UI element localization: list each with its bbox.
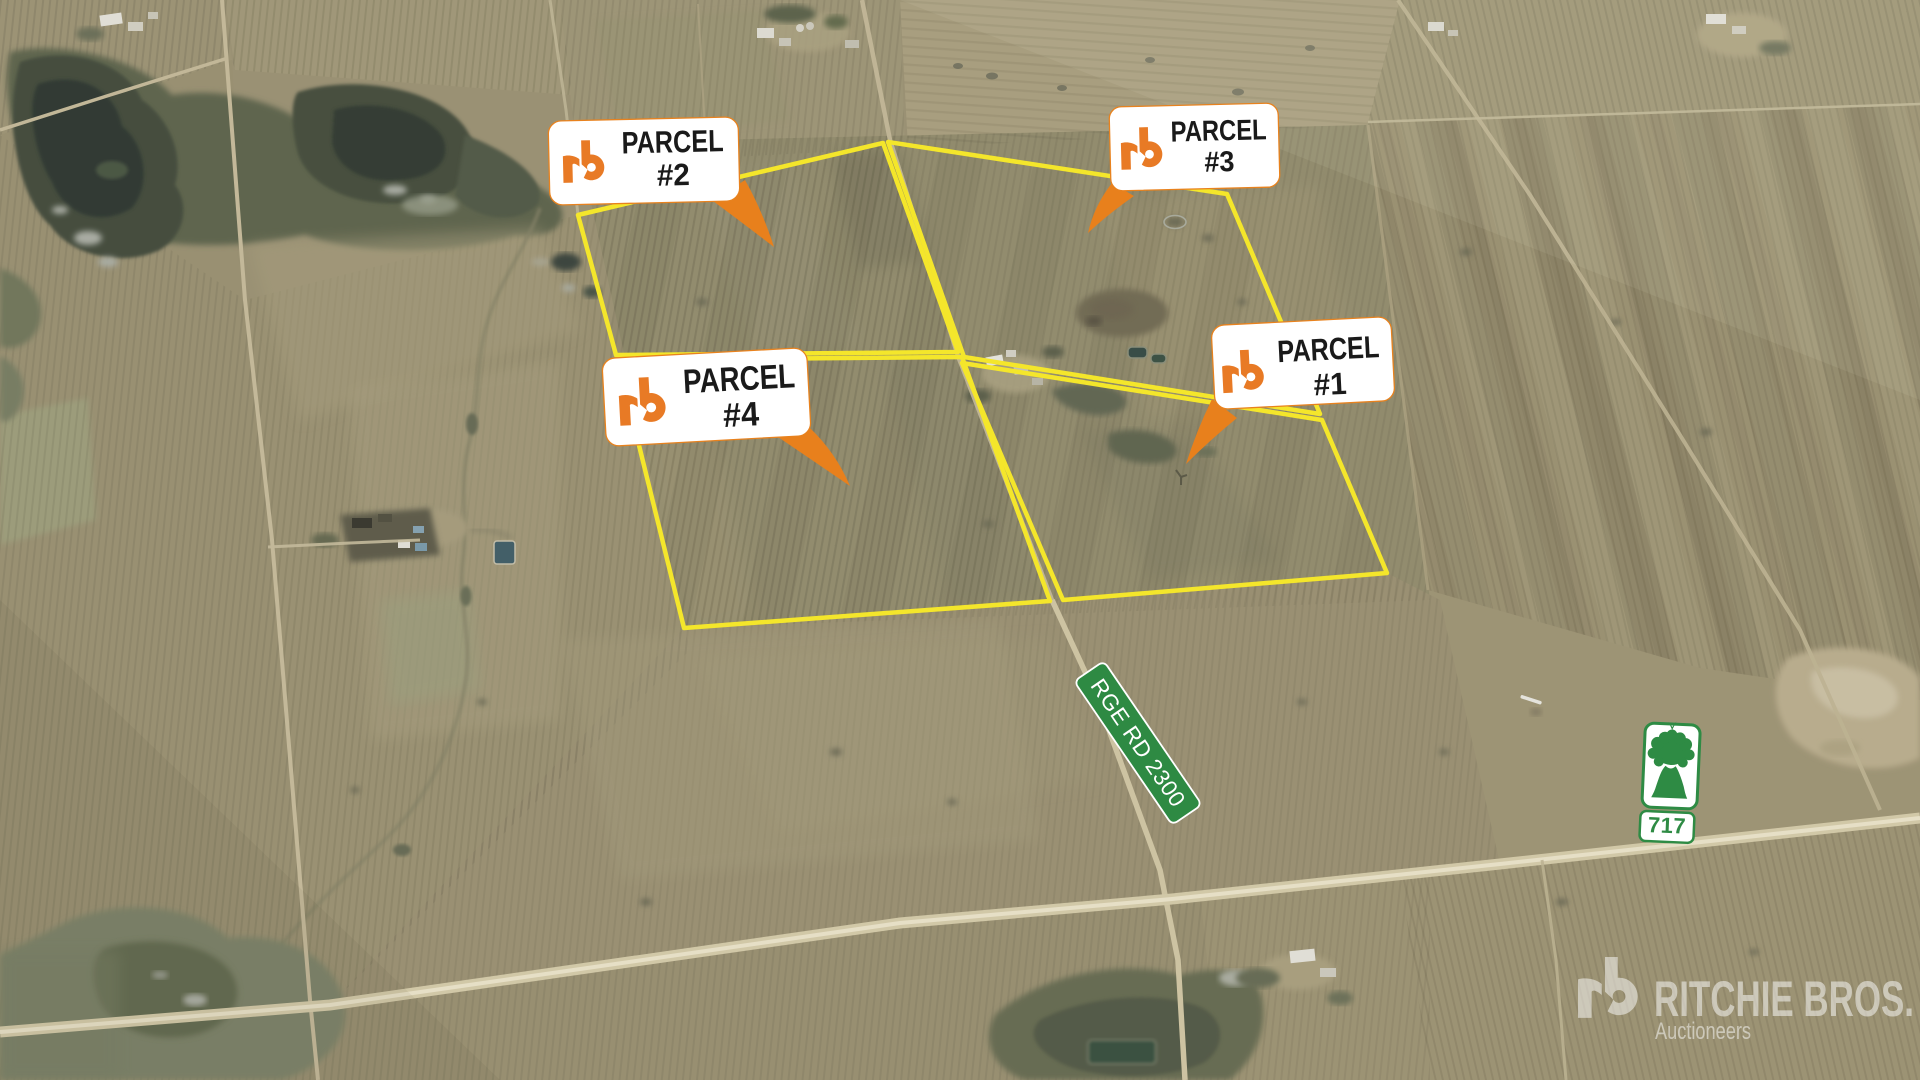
svg-text:PARCEL: PARCEL bbox=[682, 357, 796, 401]
svg-text:PARCEL: PARCEL bbox=[621, 123, 724, 160]
svg-text:#4: #4 bbox=[722, 395, 760, 435]
svg-text:#2: #2 bbox=[656, 157, 690, 193]
svg-text:#3: #3 bbox=[1204, 146, 1235, 179]
svg-text:#1: #1 bbox=[1313, 366, 1348, 403]
svg-text:PARCEL: PARCEL bbox=[1277, 329, 1381, 369]
svg-text:717: 717 bbox=[1647, 812, 1686, 839]
svg-text:Auctioneers: Auctioneers bbox=[1655, 1018, 1751, 1045]
svg-text:PARCEL: PARCEL bbox=[1170, 114, 1267, 148]
